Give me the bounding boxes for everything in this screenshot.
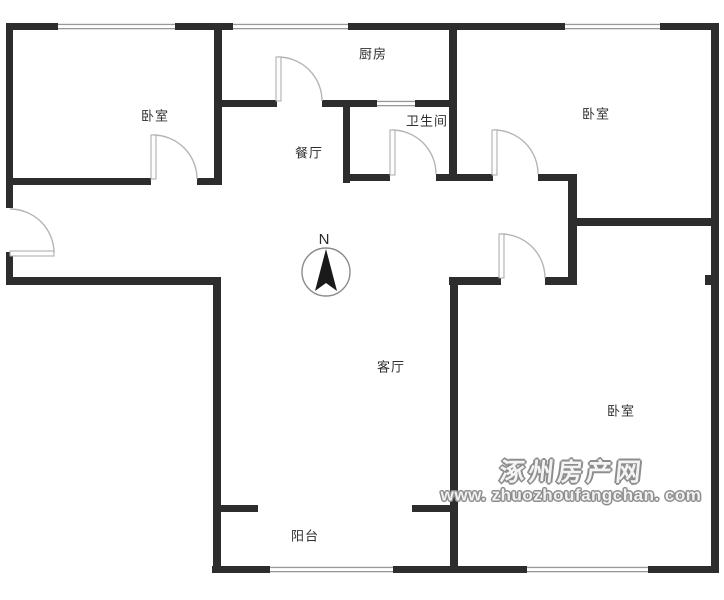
door-leaf <box>390 130 395 175</box>
door-leaf <box>276 57 281 101</box>
window-line <box>377 105 415 106</box>
wall-segment <box>6 277 219 285</box>
wall-segment <box>214 505 258 512</box>
window-line <box>565 28 660 29</box>
wall-segment <box>711 23 719 573</box>
compass-needle-icon <box>315 249 337 291</box>
door-swing-arc <box>494 130 538 174</box>
wall-segment <box>343 100 350 183</box>
watermark-site-name: 涿州房产网 <box>498 461 646 486</box>
room-label-dining: 餐厅 <box>295 147 323 160</box>
watermark-site-url: www. zhuozhoufangchan. com <box>441 487 702 504</box>
window-line <box>233 24 348 25</box>
door-swing-arc <box>501 234 545 278</box>
wall-segment <box>705 275 712 285</box>
window-line <box>58 24 175 25</box>
door-leaf <box>10 251 54 256</box>
floorplan-canvas: N 卧室 厨房 卫生间 餐厅 卧室 客厅 卧室 阳台 涿州房产网 www. zh… <box>0 0 724 600</box>
wall-segment <box>449 28 457 181</box>
room-label-kitchen: 厨房 <box>359 48 387 61</box>
window-line <box>58 28 175 29</box>
room-label-bedroom-top-right: 卧室 <box>582 108 610 121</box>
room-label-living: 客厅 <box>377 361 405 374</box>
wall-segment <box>648 566 718 573</box>
door-leaf <box>492 130 497 175</box>
wall-segment <box>393 566 527 573</box>
wall-segment <box>8 178 151 185</box>
window-line <box>233 28 348 29</box>
wall-segment <box>545 277 577 285</box>
window-line <box>527 571 648 572</box>
compass-north-label: N <box>319 231 330 248</box>
compass: N <box>302 231 350 296</box>
window-line <box>270 571 393 572</box>
window-line <box>565 24 660 25</box>
window-line <box>527 567 648 568</box>
wall-segment <box>568 218 718 226</box>
wall-segment <box>415 100 449 107</box>
wall-segment <box>213 277 221 573</box>
wall-segment <box>175 23 233 30</box>
wall-segment <box>214 100 277 107</box>
door-swing-arc <box>392 130 436 174</box>
doors-layer <box>10 57 545 278</box>
wall-segment <box>6 23 58 30</box>
floorplan-svg: N <box>0 0 724 600</box>
room-label-balcony: 阳台 <box>291 530 319 543</box>
wall-segment <box>412 505 457 512</box>
wall-segment <box>568 174 577 283</box>
door-leaf <box>499 234 504 278</box>
window-line <box>270 567 393 568</box>
window-line <box>377 101 415 102</box>
door-swing-arc <box>153 135 197 179</box>
wall-segment <box>343 174 390 181</box>
door-swing-arc <box>278 57 322 101</box>
wall-segment <box>450 277 458 566</box>
room-label-bathroom: 卫生间 <box>406 115 448 128</box>
door-leaf <box>151 135 156 179</box>
door-swing-arc <box>10 209 54 253</box>
room-label-bedroom-left: 卧室 <box>141 110 169 123</box>
wall-segment <box>436 174 493 181</box>
room-label-bedroom-bottom-right: 卧室 <box>607 405 635 418</box>
wall-segment <box>660 23 719 30</box>
